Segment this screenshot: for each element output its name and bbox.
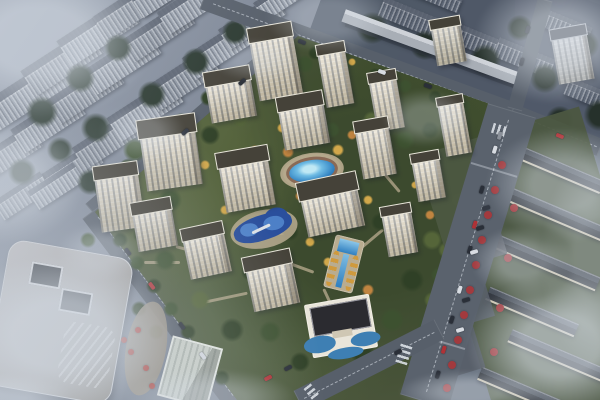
haze-261 [90,358,330,400]
tower-05 [275,89,332,151]
haze-266 [365,78,485,158]
clubhouse [304,294,378,359]
blob-84 [400,268,424,292]
autumn-tree [305,237,315,247]
haze-269 [40,212,160,292]
autumn-tree [332,144,344,156]
blob-74 [200,125,220,145]
aerial-rendering-image [0,0,600,400]
haze-273 [518,110,600,400]
haze-272 [0,365,100,400]
haze-267 [195,30,315,90]
blob-90 [220,318,244,342]
blob-85 [380,308,404,332]
blob-89 [259,321,281,343]
haze-268 [82,92,202,172]
screenshot-root [0,0,600,400]
autumn-tree [363,195,373,205]
tower-10 [214,143,278,212]
